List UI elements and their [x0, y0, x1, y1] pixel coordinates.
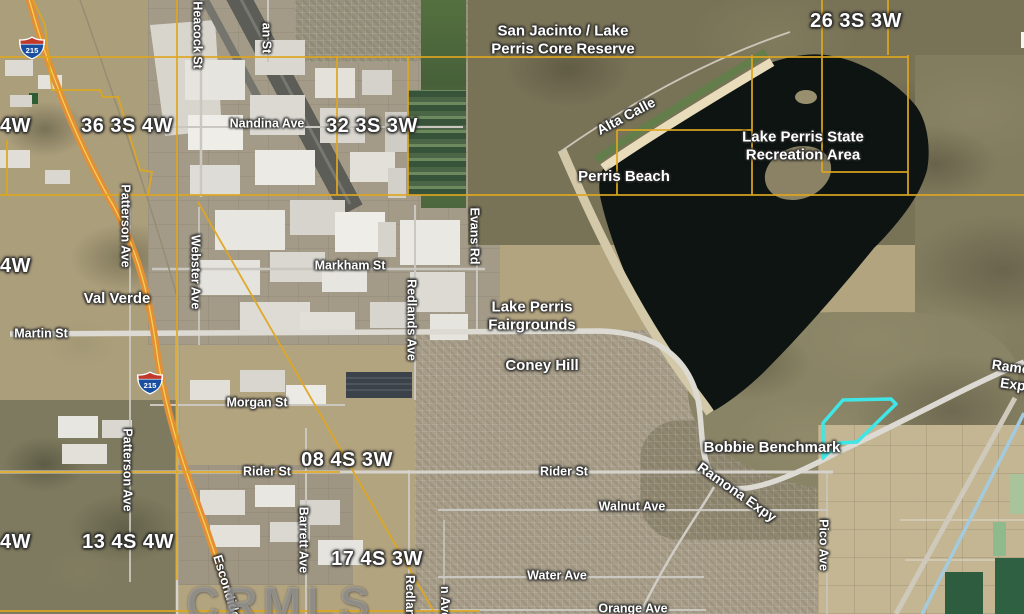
street-patterson-ave-north: Patterson Ave	[118, 184, 133, 267]
township-08-4s-3w: 08 4S 3W	[301, 449, 393, 473]
street-rider-st-east: Rider St	[540, 465, 588, 480]
map-labels: 36 3S 4W32 3S 3W26 3S 3W08 4S 3W13 4S 4W…	[0, 0, 1024, 614]
township-17-4s-3w: 17 4S 3W	[331, 548, 423, 572]
place-lake-perris-rec-area: Lake Perris State Recreation Area	[742, 128, 864, 163]
street-ramona-expy: Ramona Expy	[694, 459, 779, 526]
street-patterson-ave-south: Patterson Ave	[120, 428, 135, 511]
shield-red-band	[138, 373, 161, 379]
street-markham-st: Markham St	[315, 259, 386, 274]
crmls-watermark: CRMLS	[186, 576, 375, 614]
township-26-3s-3w: 26 3S 3W	[810, 10, 902, 34]
shield-route-number: 215	[144, 381, 157, 390]
street-redlands-ave-north: Redlands Ave	[404, 279, 419, 361]
street-heacock-st: Heacock St	[190, 1, 205, 68]
street-morgan-st: Morgan St	[226, 396, 287, 411]
township-4w-bottom: 4W	[0, 531, 31, 555]
i215-shield-south: 215	[135, 371, 165, 395]
place-lake-perris-fairgrounds: Lake Perris Fairgrounds	[488, 298, 576, 333]
street-alta-calle: Alta Calle	[594, 94, 658, 139]
township-36-3s-4w: 36 3S 4W	[81, 115, 173, 139]
street-barrett-ave: Barrett Ave	[296, 507, 311, 573]
place-bobbie-benchmark: Bobbie Benchmark	[704, 439, 841, 457]
street-rider-st-west: Rider St	[243, 465, 291, 480]
township-13-4s-4w: 13 4S 4W	[82, 531, 174, 555]
satellite-map[interactable]: 36 3S 4W32 3S 3W26 3S 3W08 4S 3W13 4S 4W…	[0, 0, 1024, 614]
street-webster-ave: Webster Ave	[188, 235, 203, 310]
township-4w-top: 4W	[0, 115, 31, 139]
street-orange-ave: Orange Ave	[598, 602, 667, 614]
place-val-verde: Val Verde	[84, 290, 151, 308]
street-martin-st: Martin St	[14, 327, 67, 342]
place-perris-beach: Perris Beach	[578, 168, 670, 186]
street-water-ave: Water Ave	[527, 569, 587, 584]
place-coney-hill: Coney Hill	[505, 357, 578, 375]
township-32-3s-3w: 32 3S 3W	[326, 115, 418, 139]
shield-red-band	[20, 38, 43, 44]
street-n-ave-fragment: n Ave	[437, 586, 452, 614]
street-ramona-expy-east-fragment: Ramona Expy	[988, 356, 1024, 396]
street-redlands-ave-south: Redlands Ave	[402, 575, 417, 614]
i215-shield-north: 215	[17, 36, 47, 60]
street-walnut-ave: Walnut Ave	[599, 500, 666, 515]
street-indian-st-fragment: an St	[259, 23, 274, 54]
street-evans-rd: Evans Rd	[467, 208, 482, 265]
shield-route-number: 215	[26, 46, 39, 55]
place-san-jacinto-core-reserve: San Jacinto / Lake Perris Core Reserve	[491, 22, 634, 57]
street-pico-ave: Pico Ave	[816, 519, 831, 571]
township-4w-middle: 4W	[0, 255, 31, 279]
street-nandina-ave: Nandina Ave	[230, 117, 305, 132]
